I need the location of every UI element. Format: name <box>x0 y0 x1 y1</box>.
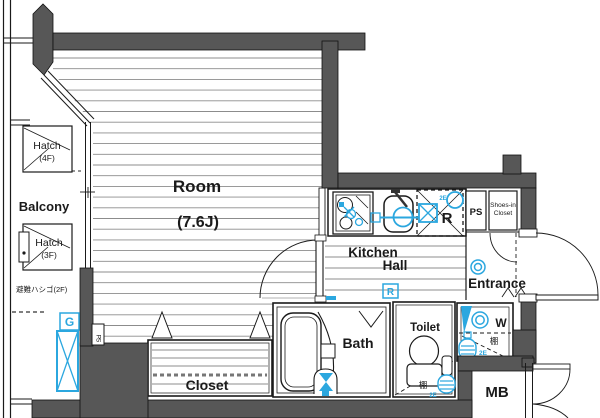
wall-bottom-left-block <box>80 343 148 418</box>
gas-cock-icon <box>339 202 344 207</box>
shoes-closet-label-1: Shoes-in <box>490 202 516 209</box>
room-size-label: (7.6J) <box>177 214 219 231</box>
wall-balcony-pillar <box>33 4 53 75</box>
toilet-label: Toilet <box>410 322 440 334</box>
closet-label: Closet <box>186 377 229 393</box>
ps-shaft: PS <box>92 324 104 345</box>
balcony-label: Balcony <box>19 199 70 214</box>
mb-door-arc-bottom <box>533 404 568 418</box>
toilet-shelf-label: 棚 <box>419 380 428 390</box>
sliding-door-mark-right <box>250 312 270 338</box>
room-door <box>260 235 336 302</box>
hall-label: Hall <box>383 258 408 273</box>
room-label: Room <box>173 177 221 196</box>
room-door-arc <box>260 240 318 298</box>
wall-room-right <box>322 41 338 188</box>
bath-door-handle <box>321 344 335 358</box>
wall-left-strip <box>80 268 93 346</box>
toilet-outlet-label: 2E <box>429 393 436 399</box>
kitchen-outlet-label: 2E <box>439 196 446 202</box>
washer-shelf-label: 棚 <box>490 336 499 346</box>
floor-plan-svg: Room (7.6J) R <box>0 0 600 418</box>
bath: Bath <box>273 303 390 397</box>
hall-outlet-label: R <box>387 287 395 298</box>
partition-room-hall <box>319 188 325 240</box>
wall-kitchen-top <box>338 173 536 188</box>
blue-marker <box>326 296 336 300</box>
wall-top <box>53 33 365 50</box>
hatch-4f: Hatch (4F) <box>23 126 82 172</box>
floor-plan: Room (7.6J) R <box>0 0 600 418</box>
escape-ladder-label: 避難ハシゴ(2F) <box>16 284 68 294</box>
toilet-water-tap-icon <box>438 375 455 393</box>
shoes-closet-label-2: Closet <box>494 210 513 217</box>
entrance-door-leaf <box>536 295 598 300</box>
hatch-4f-label: Hatch <box>33 140 61 152</box>
entrance-label: Entrance <box>468 276 526 291</box>
ps-label: PS <box>470 207 483 218</box>
fridge-label: R <box>442 210 453 227</box>
wall-right-upper <box>521 188 536 232</box>
sliding-door-mark-left <box>152 312 172 338</box>
toilet-room: Toilet 棚 2E <box>393 302 455 399</box>
closet: Closet <box>148 312 272 396</box>
bath-label: Bath <box>342 335 373 351</box>
gas-meter-label: G <box>65 315 74 329</box>
entrance-area: PS Shoes-in Closet Entrance <box>466 189 527 300</box>
hatch-3f-label: Hatch <box>35 237 63 249</box>
hall-outlet-box: R <box>383 284 398 298</box>
hatch-3f-floor: (3F) <box>41 250 57 260</box>
entrance-door <box>519 229 598 302</box>
washer-space: W 棚 2E <box>457 303 513 361</box>
shoes-closet-door-arc <box>490 233 517 262</box>
mb-door-leaf <box>533 364 570 369</box>
washer-label: W <box>495 316 507 330</box>
wall-bump <box>503 155 521 174</box>
room-door-leaf <box>316 240 323 298</box>
hatch-3f: Hatch (3F) <box>19 224 72 270</box>
hatch-4f-floor: (4F) <box>39 153 55 163</box>
mb-label: MB <box>485 384 508 401</box>
mb-door-arc-top <box>533 369 570 404</box>
stove-icon <box>333 192 373 234</box>
entrance-light-icon <box>471 260 485 274</box>
entrance-door-arc <box>536 233 598 295</box>
